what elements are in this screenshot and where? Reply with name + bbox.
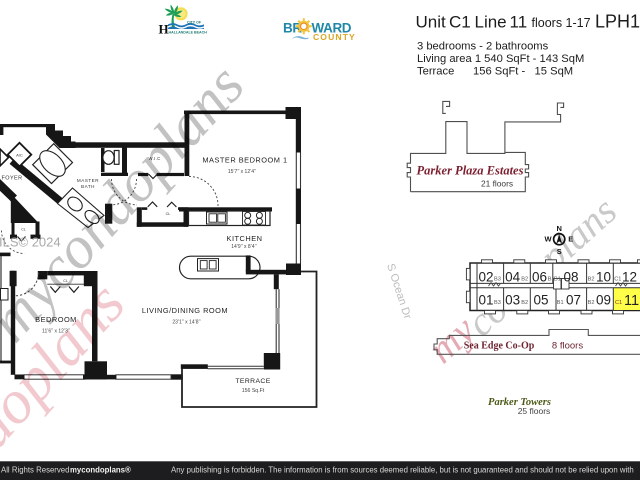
svg-text:CL: CL [21,228,26,232]
svg-text:HALLANDALE BEACH: HALLANDALE BEACH [169,31,208,35]
svg-text:KITCHEN: KITCHEN [227,234,263,243]
svg-text:08: 08 [563,270,578,285]
svg-text:CL: CL [166,212,171,216]
svg-text:All Rights Reserved: All Rights Reserved [1,465,69,474]
svg-text:09: 09 [596,293,611,308]
svg-text:11: 11 [624,293,639,309]
svg-text:05: 05 [533,293,548,308]
svg-text:01: 01 [478,293,493,308]
svg-text:C1: C1 [615,300,622,306]
svg-text:156 Sq.Ft: 156 Sq.Ft [242,388,265,394]
svg-text:Line: Line [475,13,507,32]
svg-text:02: 02 [478,270,493,285]
svg-text:06: 06 [532,270,547,285]
svg-text:H: H [159,22,169,37]
svg-text:Parker Plaza Estates: Parker Plaza Estates [417,164,524,178]
svg-text:Sea Edge Co-Op: Sea Edge Co-Op [464,341,535,352]
svg-text:04: 04 [505,270,521,285]
svg-text:B1: B1 [557,300,564,306]
svg-text:156 SqFt - 15 SqM: 156 SqFt - 15 SqM [473,66,573,78]
svg-text:B1: B1 [554,277,561,283]
svg-text:23’1’’ x 14’8’’: 23’1’’ x 14’8’’ [172,320,200,326]
svg-text:15’7’’ x 12’4’’: 15’7’’ x 12’4’’ [228,169,256,175]
svg-text:Unit: Unit [416,13,447,32]
svg-text:C1: C1 [614,277,621,283]
svg-text:B2: B2 [588,277,595,283]
svg-text:11: 11 [510,13,528,32]
svg-text:3 bedrooms - 2 bathrooms: 3 bedrooms - 2 bathrooms [417,41,549,53]
svg-text:03: 03 [505,293,520,308]
svg-text:Terrace: Terrace [417,66,454,78]
svg-text:N: N [556,224,561,233]
svg-text:CITY OF: CITY OF [187,21,202,25]
svg-text:C1: C1 [449,13,471,32]
svg-text:S: S [557,247,562,256]
svg-text:Living area 1 540 SqFt - 143 S: Living area 1 540 SqFt - 143 SqM [417,53,584,65]
svg-text:floors 1-17: floors 1-17 [532,16,591,30]
svg-text:FOYER: FOYER [2,176,23,182]
svg-text:MASTER BEDROOM 1: MASTER BEDROOM 1 [202,156,287,165]
svg-text:mycondoplans®: mycondoplans® [70,465,131,474]
svg-text:B2: B2 [521,277,528,283]
svg-text:B2: B2 [521,300,528,306]
svg-text:10: 10 [596,270,611,285]
svg-text:B3: B3 [494,300,501,306]
svg-text:W: W [544,235,552,244]
svg-text:25 floors: 25 floors [518,406,551,416]
svg-text:COUNTY: COUNTY [313,32,356,42]
svg-text:LIVING/DINING ROOM: LIVING/DINING ROOM [142,306,228,315]
svg-text:TERRACE: TERRACE [235,378,270,385]
svg-text:14’9’’ x 8’4’’: 14’9’’ x 8’4’’ [231,244,256,250]
svg-text:8 floors: 8 floors [552,341,583,352]
svg-text:B2: B2 [588,300,595,306]
svg-text:Any publishing is forbidden.: Any publishing is forbidden. The informa… [171,465,634,474]
svg-text:E: E [568,235,573,244]
svg-text:A/C: A/C [16,153,23,158]
svg-text:B3: B3 [494,277,501,283]
svg-text:21 floors: 21 floors [481,179,513,189]
svg-text:12: 12 [622,270,637,285]
svg-text:LPH11: LPH11 [595,12,640,32]
svg-text:07: 07 [566,293,581,308]
